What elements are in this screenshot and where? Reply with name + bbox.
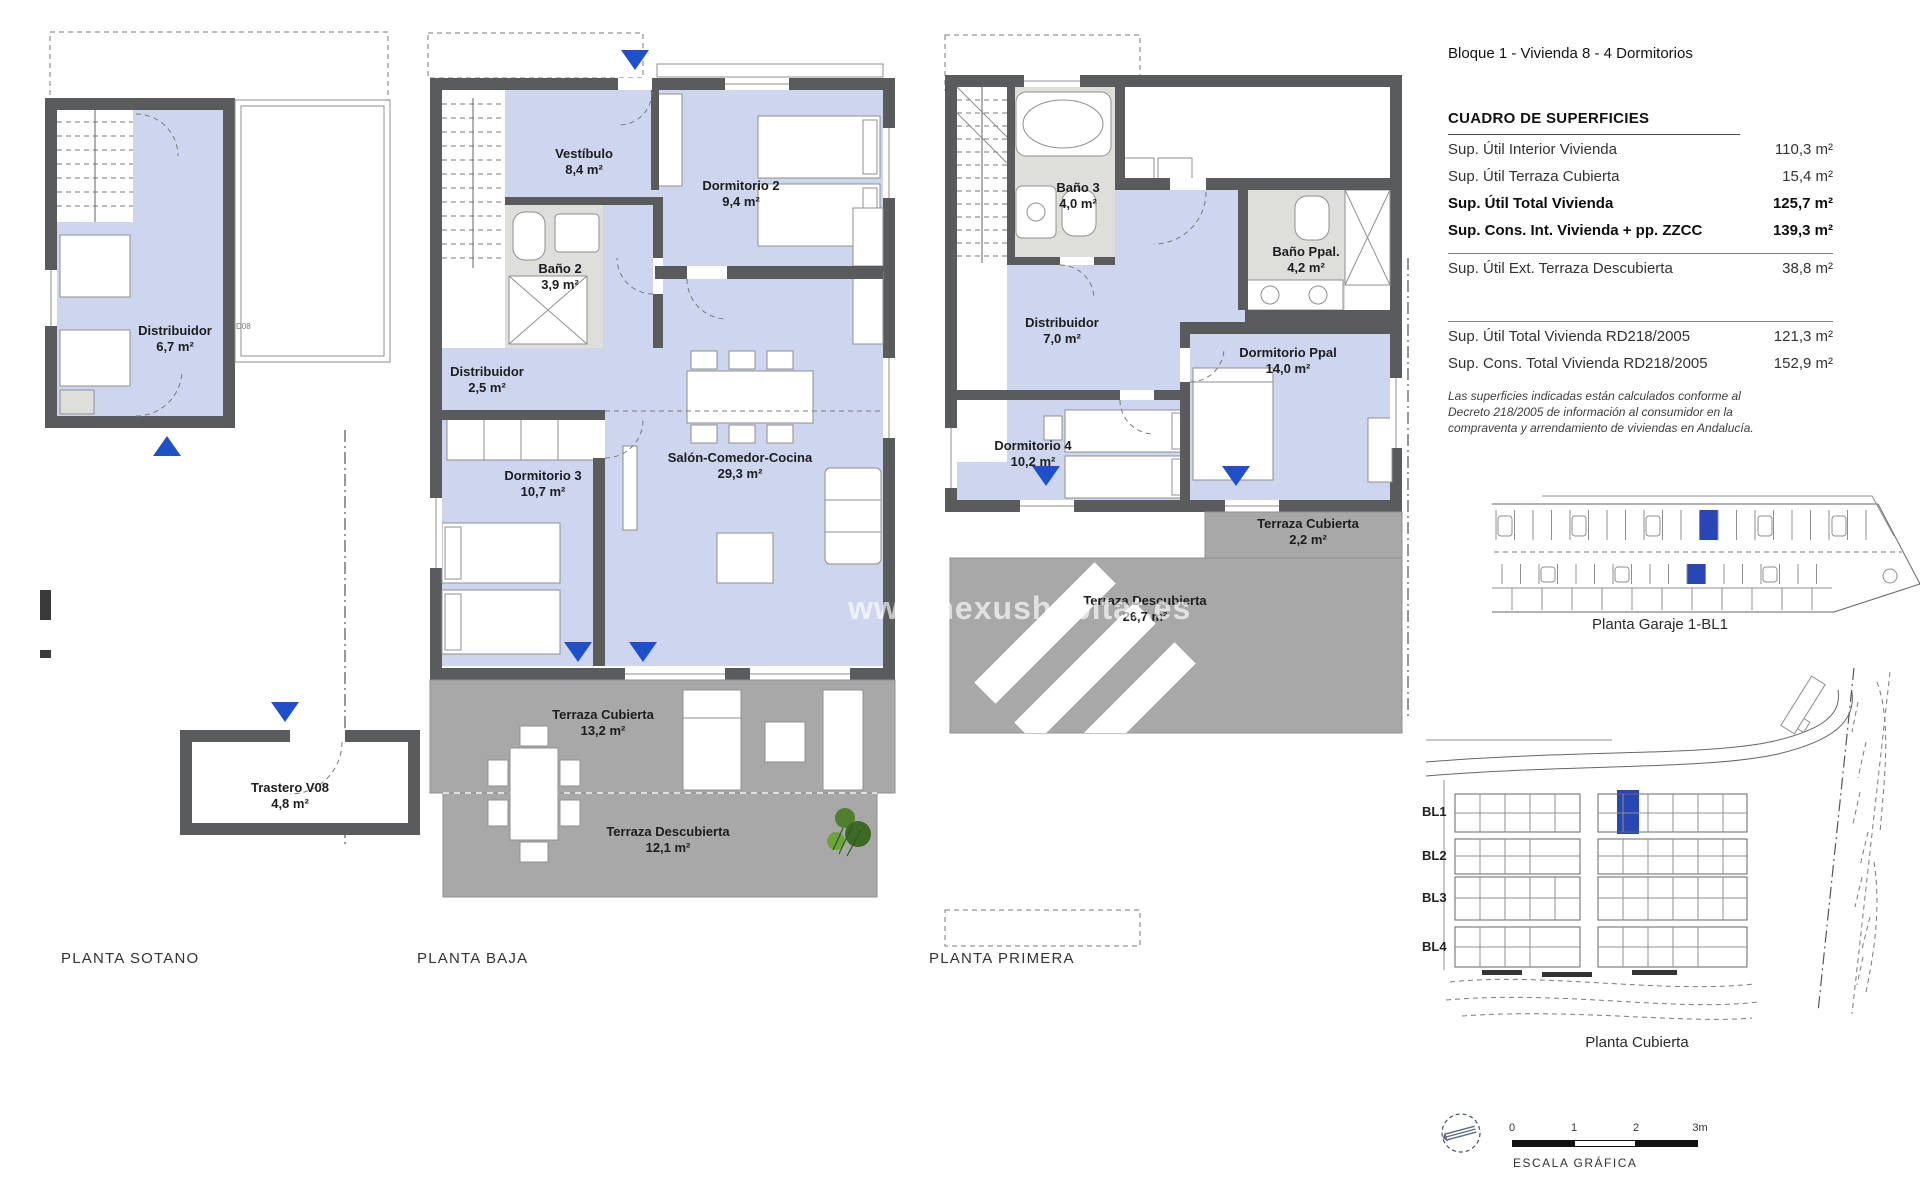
scale-tick: 0 bbox=[1509, 1122, 1515, 1134]
door-tag: D08 bbox=[236, 322, 251, 331]
scale-bar-segment bbox=[1574, 1140, 1636, 1147]
baja-property-lines bbox=[428, 33, 883, 78]
room-name: Salón-Comedor-Cocina bbox=[668, 450, 812, 465]
room-name: Distribuidor bbox=[138, 323, 212, 338]
garage-plan-svg bbox=[1482, 488, 1920, 618]
site-plan: BL1 BL2 BL3 BL4 bbox=[1422, 662, 1917, 1022]
room-area: 2,5 m² bbox=[450, 380, 524, 396]
room-area: 14,0 m² bbox=[1239, 361, 1337, 377]
room-name: Dormitorio Ppal bbox=[1239, 345, 1337, 360]
room-label: Dormitorio 3 10,7 m² bbox=[504, 468, 581, 500]
room-name: Dormitorio 4 bbox=[994, 438, 1071, 453]
room-label: Terraza Cubierta 2,2 m² bbox=[1257, 516, 1359, 548]
scale-tick: 2 bbox=[1633, 1122, 1639, 1134]
row-value: 38,8 m² bbox=[1782, 260, 1833, 277]
room-area: 4,2 m² bbox=[1272, 260, 1339, 276]
highlighted-parking-space bbox=[1700, 510, 1719, 540]
highlighted-parking-space bbox=[1687, 564, 1706, 584]
room-name: Dormitorio 2 bbox=[702, 178, 779, 193]
table-row: Sup. Útil Total Vivienda RD218/2005 121,… bbox=[1448, 322, 1833, 349]
plan-title-baja: PLANTA BAJA bbox=[417, 950, 528, 967]
entrance-arrow-icon bbox=[153, 436, 181, 456]
sotano-floorplan-svg bbox=[40, 30, 440, 870]
surface-table: CUADRO DE SUPERFICIES Sup. Útil Interior… bbox=[1448, 110, 1833, 436]
garage-caption: Planta Garaje 1-BL1 bbox=[1500, 616, 1820, 633]
table-row: Sup. Útil Ext. Terraza Descubierta 38,8 … bbox=[1448, 254, 1833, 281]
site-plan-svg bbox=[1422, 662, 1917, 1022]
room-label: Baño Ppal. 4,2 m² bbox=[1272, 244, 1339, 276]
floorplan-sheet: { "header": { "title": "Bloque 1 - Vivie… bbox=[0, 0, 1920, 1200]
room-area: 6,7 m² bbox=[138, 339, 212, 355]
room-area: 3,9 m² bbox=[538, 277, 581, 293]
room-name: Vestíbulo bbox=[555, 146, 613, 161]
room-name: Distribuidor bbox=[1025, 315, 1099, 330]
plan-baja: Vestíbulo 8,4 m² Dormitorio 2 9,4 m² Bañ… bbox=[425, 18, 910, 913]
compass-icon bbox=[1436, 1106, 1488, 1158]
site-building bbox=[1781, 676, 1831, 737]
room-area: 9,4 m² bbox=[702, 194, 779, 210]
room-label: Distribuidor 6,7 m² bbox=[138, 323, 212, 355]
watermark: www.nexushabitat.es bbox=[848, 590, 1191, 627]
room-label: Baño 2 3,9 m² bbox=[538, 261, 581, 293]
room-area: 29,3 m² bbox=[668, 466, 812, 482]
room-label: Salón-Comedor-Cocina 29,3 m² bbox=[668, 450, 812, 482]
plan-title-primera: PLANTA PRIMERA bbox=[929, 950, 1075, 967]
block-label-bl2: BL2 bbox=[1422, 848, 1447, 863]
block-label-bl3: BL3 bbox=[1422, 890, 1447, 905]
block-label-bl4: BL4 bbox=[1422, 939, 1447, 954]
room-area: 4,0 m² bbox=[1056, 196, 1099, 212]
surface-table-title: CUADRO DE SUPERFICIES bbox=[1448, 110, 1740, 135]
plan-sotano: Distribuidor 6,7 m² Trastero V08 4,8 m² … bbox=[40, 30, 440, 870]
room-label: Dormitorio 2 9,4 m² bbox=[702, 178, 779, 210]
plan-title-sotano: PLANTA SOTANO bbox=[61, 950, 199, 967]
row-label: Sup. Cons. Int. Vivienda + pp. ZZCC bbox=[1448, 222, 1702, 239]
row-value: 110,3 m² bbox=[1775, 141, 1833, 158]
room-area: 10,7 m² bbox=[504, 484, 581, 500]
scale-tick: 1 bbox=[1571, 1122, 1577, 1134]
table-row: Sup. Útil Total Vivienda 125,7 m² bbox=[1448, 189, 1833, 216]
room-label: Terraza Cubierta 13,2 m² bbox=[552, 707, 654, 739]
garage-stalls bbox=[1492, 510, 1902, 610]
baja-terraces bbox=[430, 680, 895, 897]
table-row: Sup. Útil Terraza Cubierta 15,4 m² bbox=[1448, 162, 1833, 189]
site-blocks bbox=[1455, 794, 1747, 977]
row-label: Sup. Útil Interior Vivienda bbox=[1448, 141, 1617, 158]
row-label: Sup. Útil Ext. Terraza Descubierta bbox=[1448, 260, 1673, 277]
row-value: 121,3 m² bbox=[1774, 328, 1833, 345]
primera-terraces bbox=[950, 512, 1402, 784]
table-note: Las superficies indicadas están calculad… bbox=[1448, 388, 1778, 436]
room-name: Baño Ppal. bbox=[1272, 244, 1339, 259]
table-row: Sup. Útil Interior Vivienda 110,3 m² bbox=[1448, 135, 1833, 162]
page-title: Bloque 1 - Vivienda 8 - 4 Dormitorios bbox=[1448, 45, 1693, 62]
table-row: Sup. Cons. Total Vivienda RD218/2005 152… bbox=[1448, 349, 1833, 376]
row-label: Sup. Útil Total Vivienda bbox=[1448, 195, 1613, 212]
room-label: Dormitorio Ppal 14,0 m² bbox=[1239, 345, 1337, 377]
room-label: Distribuidor 7,0 m² bbox=[1025, 315, 1099, 347]
primera-floorplan-svg bbox=[940, 18, 1415, 953]
room-label: Terraza Descubierta 12,1 m² bbox=[606, 824, 729, 856]
room-area: 13,2 m² bbox=[552, 723, 654, 739]
room-name: Terraza Descubierta bbox=[606, 824, 729, 839]
room-area: 10,2 m² bbox=[994, 454, 1071, 470]
room-label: Vestíbulo 8,4 m² bbox=[555, 146, 613, 178]
primera-stair bbox=[957, 87, 1007, 462]
row-value: 15,4 m² bbox=[1782, 168, 1833, 185]
block-label-bl1: BL1 bbox=[1422, 804, 1447, 819]
table-row: Sup. Cons. Int. Vivienda + pp. ZZCC 139,… bbox=[1448, 216, 1833, 243]
row-value: 152,9 m² bbox=[1774, 355, 1833, 372]
row-label: Sup. Cons. Total Vivienda RD218/2005 bbox=[1448, 355, 1708, 372]
scale-caption: ESCALA GRÁFICA bbox=[1513, 1156, 1637, 1170]
baja-stair bbox=[442, 90, 505, 348]
row-label: Sup. Útil Total Vivienda RD218/2005 bbox=[1448, 328, 1690, 345]
room-label: Trastero V08 4,8 m² bbox=[251, 780, 329, 812]
scale-bar-segment bbox=[1636, 1140, 1698, 1147]
room-name: Baño 2 bbox=[538, 261, 581, 276]
room-name: Terraza Cubierta bbox=[552, 707, 654, 722]
room-name: Distribuidor bbox=[450, 364, 524, 379]
room-label: Baño 3 4,0 m² bbox=[1056, 180, 1099, 212]
entrance-arrow-icon bbox=[271, 702, 299, 722]
entrance-arrow-icon bbox=[621, 50, 649, 70]
room-label: Distribuidor 2,5 m² bbox=[450, 364, 524, 396]
row-label: Sup. Útil Terraza Cubierta bbox=[1448, 168, 1619, 185]
highlighted-unit bbox=[1617, 790, 1639, 834]
garage-plan bbox=[1482, 488, 1920, 618]
room-name: Dormitorio 3 bbox=[504, 468, 581, 483]
sotano-lightwell bbox=[235, 100, 390, 362]
room-name: Terraza Cubierta bbox=[1257, 516, 1359, 531]
sotano-stair bbox=[57, 110, 133, 222]
room-name: Trastero V08 bbox=[251, 780, 329, 795]
room-area: 2,2 m² bbox=[1257, 532, 1359, 548]
room-name: Baño 3 bbox=[1056, 180, 1099, 195]
plan-primera: Baño 3 4,0 m² Baño Ppal. 4,2 m² Distribu… bbox=[940, 18, 1415, 953]
room-area: 4,8 m² bbox=[251, 796, 329, 812]
room-area: 7,0 m² bbox=[1025, 331, 1099, 347]
scale-tick: 3m bbox=[1692, 1122, 1707, 1134]
site-roads bbox=[1426, 690, 1852, 970]
room-area: 12,1 m² bbox=[606, 840, 729, 856]
site-caption: Planta Cubierta bbox=[1517, 1034, 1757, 1051]
row-value: 139,3 m² bbox=[1773, 222, 1833, 239]
room-area: 8,4 m² bbox=[555, 162, 613, 178]
room-label: Dormitorio 4 10,2 m² bbox=[994, 438, 1071, 470]
row-value: 125,7 m² bbox=[1773, 195, 1833, 212]
scale-bar-segment bbox=[1512, 1140, 1574, 1147]
